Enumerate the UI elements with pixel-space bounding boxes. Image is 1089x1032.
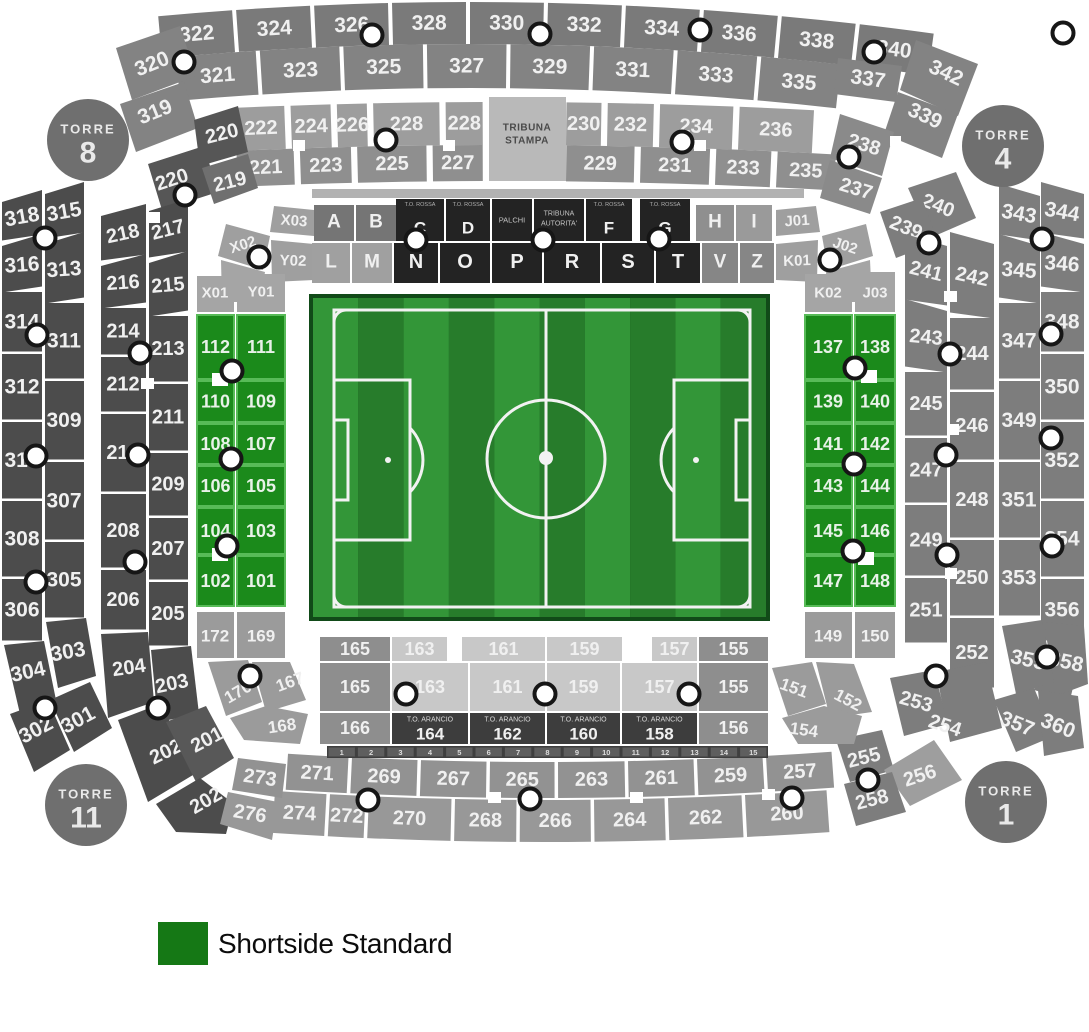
svg-text:B: B	[369, 212, 383, 233]
svg-text:11: 11	[632, 748, 640, 757]
svg-text:105: 105	[246, 476, 276, 496]
svg-text:307: 307	[46, 490, 81, 513]
svg-text:TORRE: TORRE	[975, 128, 1030, 143]
svg-text:248: 248	[955, 489, 988, 511]
svg-text:143: 143	[813, 476, 843, 496]
svg-text:347: 347	[1001, 330, 1036, 353]
svg-text:305: 305	[46, 569, 81, 592]
svg-text:335: 335	[780, 69, 817, 95]
svg-text:TORRE: TORRE	[58, 787, 113, 802]
svg-text:N: N	[409, 251, 423, 273]
svg-text:I: I	[751, 212, 756, 233]
svg-text:316: 316	[4, 252, 41, 277]
svg-text:J01: J01	[784, 212, 810, 231]
svg-text:144: 144	[860, 476, 890, 496]
svg-text:H: H	[708, 212, 722, 233]
svg-text:Z: Z	[751, 252, 763, 273]
svg-text:112: 112	[201, 337, 230, 357]
svg-text:222: 222	[244, 117, 278, 140]
svg-text:308: 308	[4, 528, 39, 551]
svg-text:Shortside Standard: Shortside Standard	[218, 928, 452, 959]
svg-text:213: 213	[151, 338, 184, 360]
svg-text:243: 243	[908, 325, 943, 350]
svg-text:106: 106	[200, 476, 230, 496]
svg-text:251: 251	[909, 600, 942, 622]
svg-text:229: 229	[583, 153, 617, 176]
svg-text:T.O. ARANCIO: T.O. ARANCIO	[636, 717, 683, 724]
svg-text:206: 206	[106, 589, 139, 611]
svg-text:STAMPA: STAMPA	[505, 136, 549, 147]
svg-text:X03: X03	[280, 212, 308, 231]
svg-text:157: 157	[659, 639, 689, 659]
svg-text:252: 252	[955, 642, 988, 664]
svg-text:338: 338	[798, 27, 836, 54]
svg-text:4: 4	[995, 143, 1012, 176]
svg-text:324: 324	[256, 16, 293, 41]
svg-text:7: 7	[516, 748, 520, 757]
svg-text:331: 331	[615, 58, 651, 83]
svg-text:149: 149	[814, 627, 842, 646]
svg-text:Y01: Y01	[248, 284, 275, 301]
svg-text:5: 5	[457, 748, 461, 757]
svg-text:336: 336	[721, 21, 758, 47]
svg-text:2: 2	[369, 748, 373, 757]
svg-text:215: 215	[150, 273, 185, 298]
svg-text:R: R	[565, 251, 580, 273]
svg-text:8: 8	[80, 137, 97, 170]
svg-text:102: 102	[200, 571, 230, 591]
svg-text:226: 226	[335, 114, 369, 137]
svg-text:306: 306	[4, 599, 39, 622]
svg-text:345: 345	[1001, 258, 1038, 283]
svg-text:271: 271	[300, 762, 335, 786]
svg-text:1: 1	[340, 748, 344, 757]
svg-text:349: 349	[1001, 409, 1036, 432]
svg-text:146: 146	[860, 521, 890, 541]
svg-text:337: 337	[849, 65, 887, 93]
svg-text:250: 250	[955, 567, 988, 589]
svg-text:269: 269	[367, 765, 401, 788]
svg-text:13: 13	[690, 748, 698, 757]
svg-text:208: 208	[106, 520, 139, 542]
svg-text:109: 109	[246, 392, 276, 412]
svg-text:T: T	[672, 251, 684, 273]
svg-text:141: 141	[813, 434, 843, 454]
svg-text:264: 264	[613, 809, 648, 832]
svg-text:J03: J03	[862, 285, 887, 302]
svg-text:207: 207	[151, 538, 184, 560]
svg-text:107: 107	[246, 434, 276, 454]
svg-text:231: 231	[658, 154, 692, 177]
svg-text:267: 267	[436, 768, 470, 791]
svg-text:351: 351	[1001, 489, 1036, 512]
svg-text:330: 330	[489, 12, 524, 35]
svg-text:159: 159	[569, 639, 599, 659]
svg-text:161: 161	[492, 677, 522, 697]
svg-text:155: 155	[718, 639, 748, 659]
svg-text:321: 321	[199, 63, 236, 89]
svg-text:263: 263	[575, 768, 609, 790]
svg-text:11: 11	[70, 802, 102, 835]
svg-text:329: 329	[532, 55, 568, 79]
svg-text:266: 266	[539, 810, 572, 832]
svg-text:246: 246	[955, 415, 988, 437]
svg-text:325: 325	[366, 55, 402, 79]
svg-text:309: 309	[46, 409, 81, 432]
svg-text:261: 261	[644, 767, 678, 790]
svg-text:223: 223	[309, 154, 343, 177]
svg-text:230: 230	[567, 113, 601, 135]
svg-text:12: 12	[661, 748, 669, 757]
svg-text:333: 333	[698, 62, 735, 88]
svg-text:163: 163	[404, 639, 434, 659]
svg-text:M: M	[364, 252, 380, 273]
svg-text:211: 211	[152, 407, 184, 429]
svg-text:356: 356	[1044, 599, 1079, 622]
svg-text:155: 155	[718, 677, 748, 697]
svg-text:236: 236	[759, 118, 793, 141]
svg-text:6: 6	[487, 748, 491, 757]
svg-text:214: 214	[106, 321, 140, 343]
svg-text:212: 212	[106, 374, 139, 396]
svg-text:158: 158	[645, 725, 673, 744]
svg-text:101: 101	[246, 571, 276, 591]
svg-text:S: S	[621, 251, 634, 273]
svg-text:T.O. ROSSA: T.O. ROSSA	[405, 202, 436, 208]
svg-text:15: 15	[749, 748, 757, 757]
svg-text:160: 160	[569, 725, 597, 744]
svg-text:Y02: Y02	[279, 252, 306, 270]
svg-text:312: 312	[4, 376, 39, 399]
svg-text:168: 168	[267, 715, 298, 738]
svg-text:110: 110	[201, 392, 230, 412]
svg-text:K02: K02	[814, 285, 842, 302]
svg-text:1: 1	[998, 799, 1015, 832]
svg-text:9: 9	[575, 748, 579, 757]
svg-text:T.O. ARANCIO: T.O. ARANCIO	[560, 717, 607, 724]
svg-text:235: 235	[789, 159, 823, 183]
svg-text:327: 327	[449, 54, 484, 77]
svg-text:K01: K01	[783, 252, 811, 270]
svg-text:323: 323	[283, 58, 319, 83]
svg-text:154: 154	[789, 719, 820, 742]
svg-text:228: 228	[448, 113, 481, 135]
svg-text:227: 227	[441, 152, 475, 174]
svg-text:225: 225	[375, 153, 409, 176]
svg-text:159: 159	[568, 677, 598, 697]
svg-text:311: 311	[47, 330, 81, 353]
svg-text:162: 162	[493, 725, 521, 744]
svg-text:P: P	[510, 251, 523, 273]
svg-text:148: 148	[860, 571, 890, 591]
svg-text:TRIBUNA: TRIBUNA	[503, 123, 552, 134]
svg-text:353: 353	[1001, 567, 1036, 590]
svg-text:8: 8	[545, 748, 549, 757]
svg-text:224: 224	[294, 115, 329, 138]
svg-text:O: O	[457, 251, 473, 273]
svg-text:TORRE: TORRE	[978, 784, 1033, 799]
svg-text:209: 209	[151, 474, 184, 496]
svg-text:262: 262	[688, 806, 722, 829]
svg-text:313: 313	[46, 257, 83, 282]
svg-text:274: 274	[282, 802, 318, 826]
svg-text:352: 352	[1044, 449, 1079, 472]
svg-text:V: V	[714, 252, 727, 273]
svg-text:161: 161	[488, 639, 518, 659]
svg-text:259: 259	[713, 764, 747, 787]
svg-text:AUTORITA': AUTORITA'	[541, 221, 577, 228]
svg-text:233: 233	[726, 156, 760, 179]
svg-text:147: 147	[813, 571, 843, 591]
svg-text:232: 232	[613, 114, 647, 137]
svg-text:T.O. ARANCIO: T.O. ARANCIO	[407, 717, 454, 724]
svg-text:T.O. ROSSA: T.O. ROSSA	[453, 202, 484, 208]
svg-text:TORRE: TORRE	[60, 122, 115, 137]
svg-text:334: 334	[644, 16, 681, 41]
svg-text:T.O. ROSSA: T.O. ROSSA	[650, 202, 681, 208]
svg-text:166: 166	[340, 718, 370, 738]
svg-text:273: 273	[242, 765, 278, 791]
svg-text:X01: X01	[202, 285, 229, 302]
svg-text:F: F	[604, 219, 614, 238]
svg-text:346: 346	[1044, 251, 1081, 276]
svg-text:140: 140	[860, 392, 890, 412]
svg-text:D: D	[462, 219, 474, 238]
svg-text:216: 216	[106, 271, 141, 295]
svg-text:268: 268	[469, 809, 503, 831]
svg-text:14: 14	[720, 748, 729, 757]
svg-text:163: 163	[415, 677, 445, 697]
svg-text:169: 169	[247, 627, 275, 646]
svg-text:245: 245	[909, 393, 942, 415]
svg-text:165: 165	[340, 677, 370, 697]
svg-text:T.O. ROSSA: T.O. ROSSA	[594, 202, 625, 208]
svg-text:139: 139	[813, 392, 843, 412]
svg-text:103: 103	[246, 521, 276, 541]
svg-text:156: 156	[718, 718, 748, 738]
svg-text:270: 270	[392, 807, 426, 830]
svg-text:165: 165	[340, 639, 370, 659]
svg-text:205: 205	[151, 603, 184, 625]
svg-text:150: 150	[861, 627, 889, 646]
svg-text:332: 332	[566, 13, 602, 37]
svg-text:164: 164	[416, 725, 445, 744]
svg-text:TRIBUNA: TRIBUNA	[544, 211, 575, 218]
svg-text:137: 137	[813, 337, 843, 357]
svg-text:257: 257	[783, 760, 818, 784]
svg-text:T.O. ARANCIO: T.O. ARANCIO	[484, 717, 531, 724]
svg-text:A: A	[327, 212, 341, 233]
svg-text:10: 10	[602, 748, 610, 757]
svg-text:142: 142	[860, 434, 890, 454]
svg-text:PALCHI: PALCHI	[499, 216, 526, 225]
svg-text:138: 138	[860, 337, 890, 357]
svg-text:328: 328	[412, 11, 448, 34]
svg-text:3: 3	[398, 748, 402, 757]
svg-text:157: 157	[644, 677, 674, 697]
svg-text:145: 145	[813, 521, 843, 541]
svg-text:111: 111	[247, 337, 275, 357]
svg-text:350: 350	[1044, 376, 1079, 399]
svg-text:L: L	[325, 252, 337, 273]
svg-text:172: 172	[201, 627, 229, 646]
